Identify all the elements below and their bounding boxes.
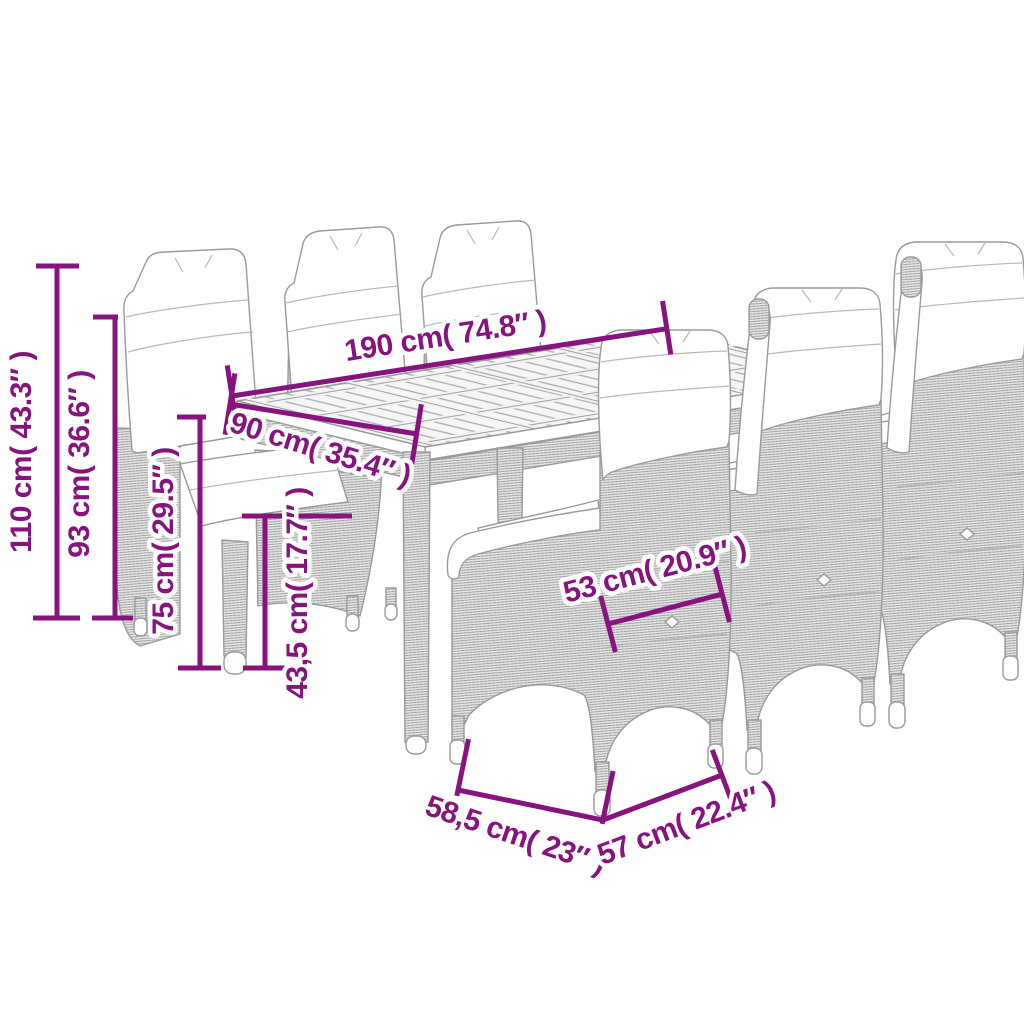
dimension-table-height: 75 cm( 29.5″ ) bbox=[147, 417, 221, 668]
dimension-label-back-height: 93 cm( 36.6″ ) bbox=[63, 370, 96, 557]
table-leg-left bbox=[403, 452, 430, 742]
dimension-label-total-height: 110 cm( 43.3″ ) bbox=[5, 351, 38, 553]
dining-set-line-drawing: 110 cm( 43.3″ ) 93 cm( 36.6″ ) 75 cm( 29… bbox=[0, 0, 1024, 1024]
product-dimension-diagram: 110 cm( 43.3″ ) 93 cm( 36.6″ ) 75 cm( 29… bbox=[0, 0, 1024, 1024]
dimension-label-seat-height: 43,5 cm( 17.7″ ) bbox=[281, 487, 314, 699]
dimension-label-table-height: 75 cm( 29.5″ ) bbox=[147, 447, 180, 634]
